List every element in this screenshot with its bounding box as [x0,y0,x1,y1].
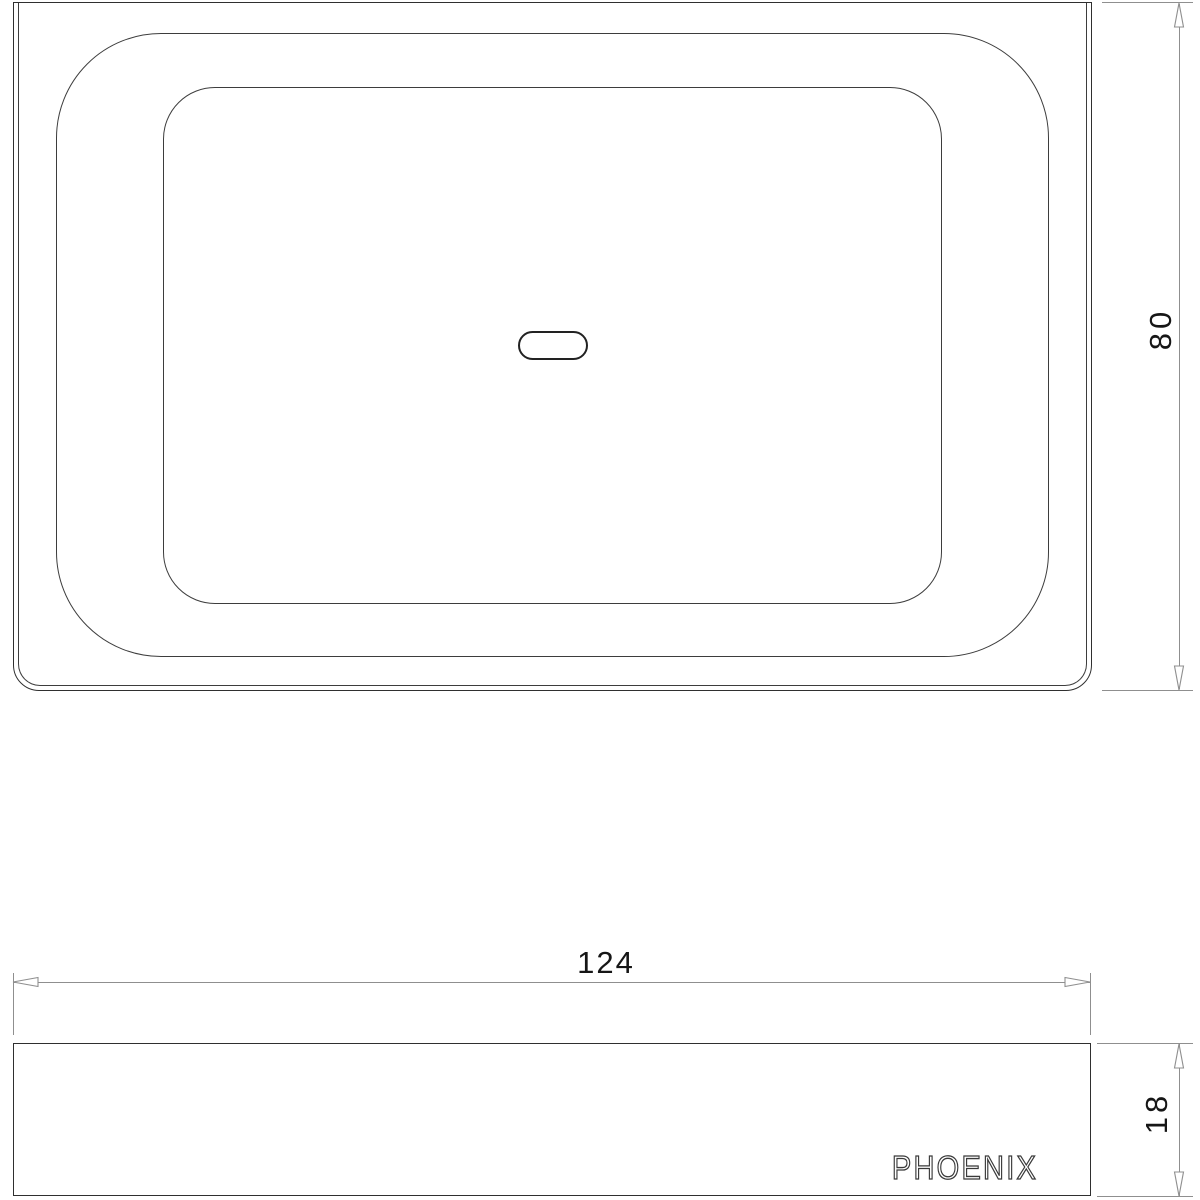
dimension-arrowheads [0,0,1200,1200]
dim-depth-arrow-up-icon [1175,1044,1184,1068]
dim-height-arrow-down-icon [1175,666,1184,690]
dim-width-arrow-left-icon [13,978,38,987]
dim-height-arrow-up-icon [1175,3,1184,27]
dim-width-arrow-right-icon [1065,978,1090,987]
dim-depth-arrow-down-icon [1175,1172,1184,1196]
technical-drawing-canvas: PHOENIX 80 124 18 [0,0,1200,1200]
